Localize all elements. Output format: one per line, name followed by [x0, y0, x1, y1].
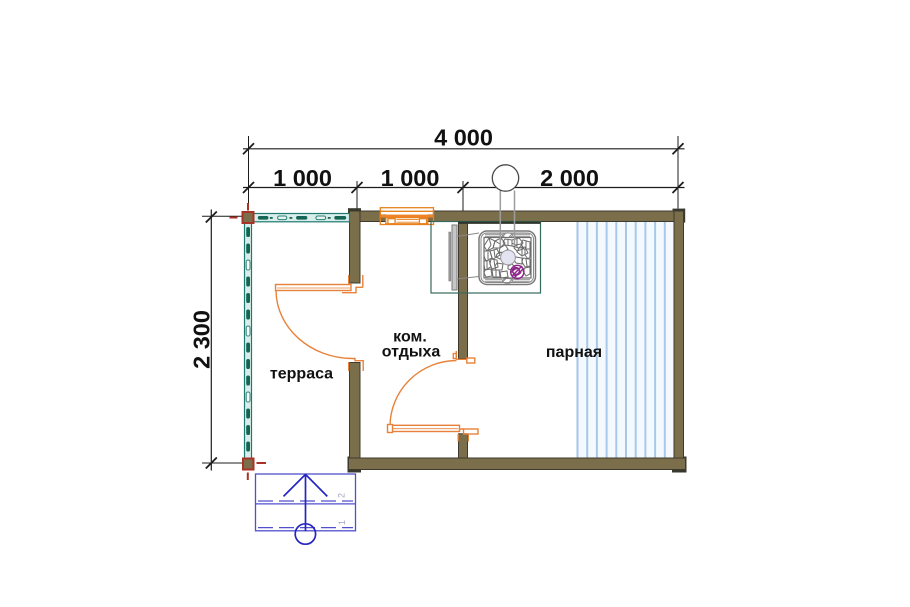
svg-text:отдыха: отдыха: [382, 344, 441, 361]
svg-text:1: 1: [337, 520, 347, 525]
svg-text:2 000: 2 000: [540, 165, 599, 191]
svg-text:терраса: терраса: [270, 366, 333, 383]
svg-text:2 300: 2 300: [189, 310, 215, 369]
svg-text:1 000: 1 000: [273, 165, 332, 191]
svg-text:1 000: 1 000: [381, 165, 440, 191]
svg-text:4 000: 4 000: [434, 125, 493, 151]
svg-text:парная: парная: [546, 344, 602, 361]
svg-text:2: 2: [337, 493, 347, 498]
